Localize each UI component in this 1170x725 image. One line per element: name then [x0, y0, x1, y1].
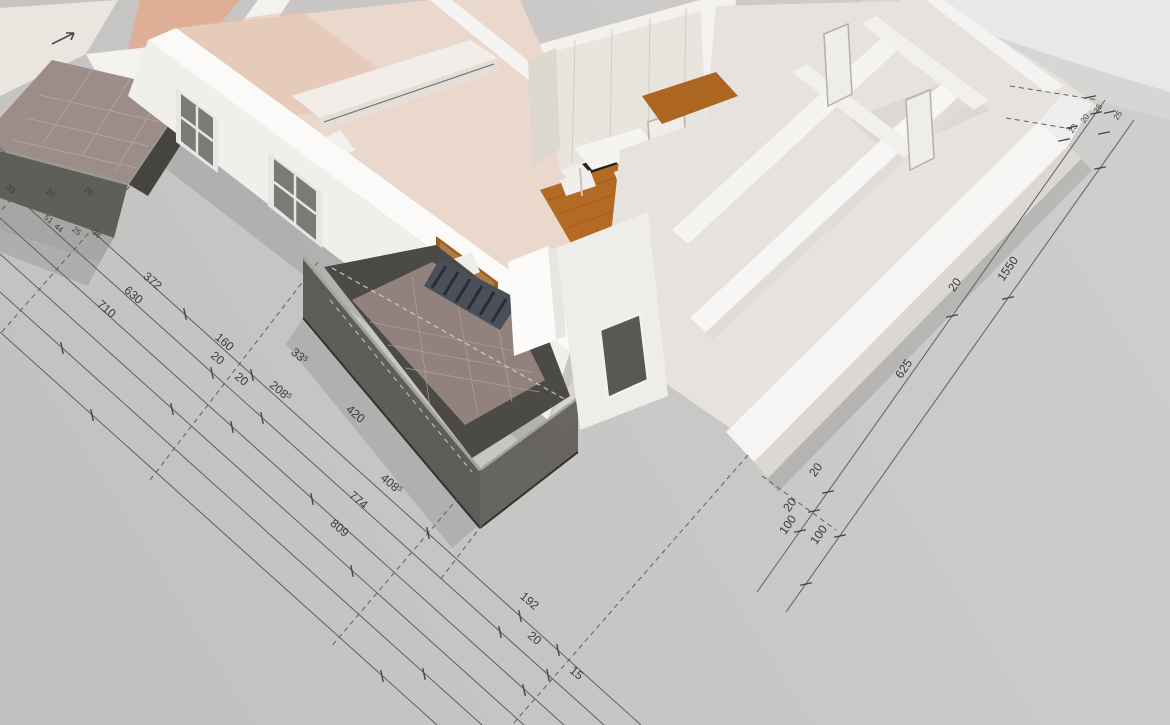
door — [824, 24, 852, 106]
balcony-side-wall — [508, 246, 556, 356]
render-canvas: 3726307101602020208533542040857748091922… — [0, 0, 1170, 725]
floorplan-3d-render: 3726307101602020208533542040857748091922… — [0, 0, 1170, 725]
door — [906, 90, 934, 170]
